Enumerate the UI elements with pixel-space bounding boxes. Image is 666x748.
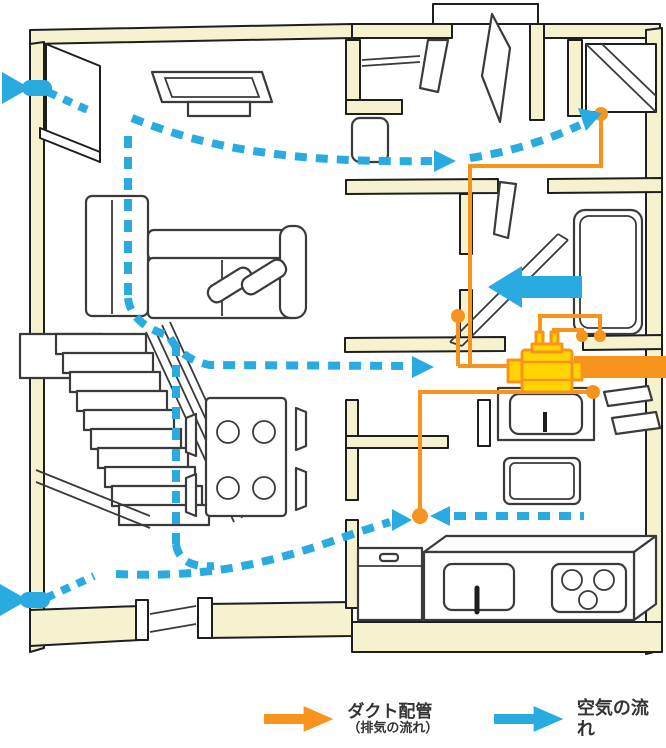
duct-arrow-icon — [264, 706, 335, 732]
dining-chair — [296, 408, 306, 450]
toilet — [352, 118, 388, 162]
airflow-path — [176, 544, 214, 566]
entrance-post — [198, 598, 212, 638]
dining-chair — [186, 414, 196, 456]
legend-duct-label: ダクト配管 — [347, 702, 437, 722]
washroom — [498, 388, 594, 504]
duct-junction-dot — [594, 330, 606, 342]
airflow-arrow — [412, 356, 434, 378]
door-leaf — [482, 14, 510, 122]
airflow-arrow — [392, 509, 412, 531]
duct-junction-dot — [451, 309, 465, 323]
exhaust-outlet-duct — [574, 356, 666, 378]
airflow-arrow — [434, 150, 456, 172]
legend-duct-sublabel: （排気の流れ） — [347, 721, 437, 736]
airflow-arrow — [430, 506, 450, 526]
exhaust-fan-unit — [508, 332, 582, 392]
legend-item-duct: ダクト配管 （排気の流れ） — [264, 702, 438, 736]
airflow-arrow-icon — [494, 706, 565, 732]
ceiling-light — [152, 72, 272, 116]
entrance-post — [136, 600, 148, 640]
legend-airflow-label: 空気の流れ — [577, 698, 666, 739]
airflow-path — [470, 125, 580, 158]
floor-plan-diagram — [0, 0, 666, 690]
corner-shelf — [604, 386, 652, 406]
dining-chair — [296, 468, 306, 510]
legend-item-airflow: 空気の流れ — [494, 698, 666, 739]
floor-plan-svg — [0, 0, 666, 690]
legend: ダクト配管 （排気の流れ） 空気の流れ — [0, 690, 666, 748]
dining-chair — [186, 474, 196, 516]
sofa — [86, 196, 306, 318]
upper-rooms — [352, 14, 656, 238]
stove — [552, 564, 626, 612]
duct-junction-dot — [586, 385, 600, 399]
door-leaf — [420, 40, 448, 92]
duct-junction-dot — [412, 508, 428, 524]
kitchen — [358, 536, 656, 620]
duct-junction-dot — [576, 330, 588, 342]
